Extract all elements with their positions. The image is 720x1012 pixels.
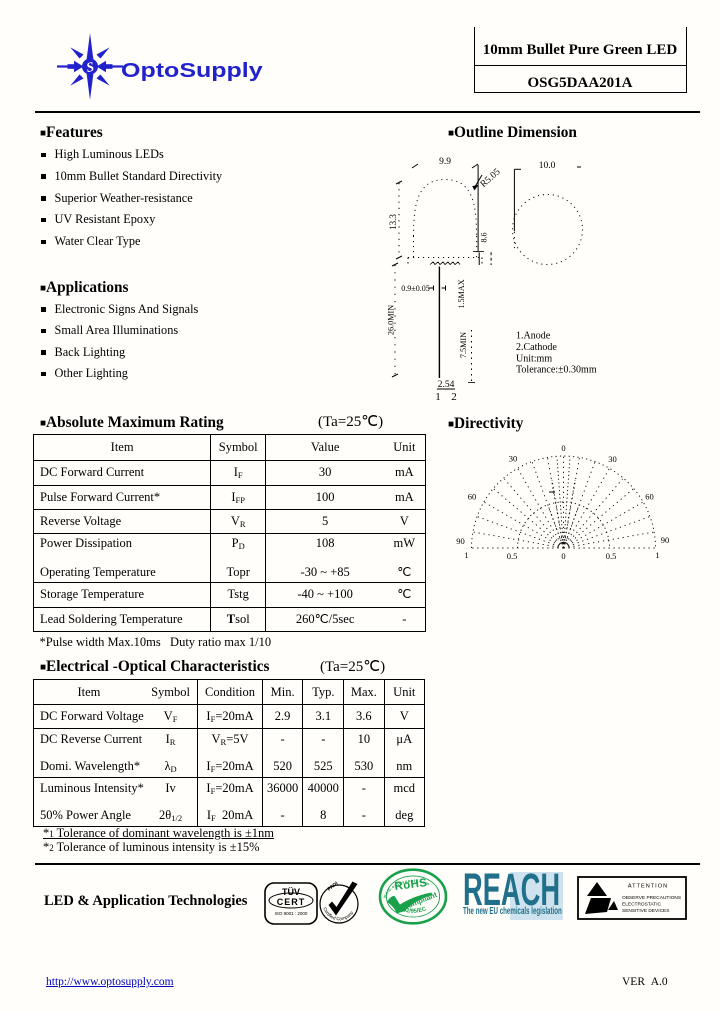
- svg-text:0: 0: [561, 551, 565, 561]
- svg-text:PADI: PADI: [327, 880, 340, 892]
- svg-text:ATTENTION: ATTENTION: [628, 884, 668, 890]
- svg-text:9.9: 9.9: [439, 157, 451, 167]
- svg-text:OBSERVE PRECAUTIONS: OBSERVE PRECAUTIONS: [622, 895, 681, 901]
- svg-text:ELECTROSTATIC: ELECTROSTATIC: [622, 902, 662, 908]
- svg-text:CERT: CERT: [277, 897, 306, 907]
- svg-text:8.6: 8.6: [480, 233, 489, 243]
- svg-text:10.0: 10.0: [539, 161, 556, 171]
- svg-text:30: 30: [509, 454, 518, 464]
- svg-text:26.0MIN: 26.0MIN: [387, 305, 396, 335]
- svg-text:R5.05: R5.05: [479, 167, 503, 190]
- svg-text:Unit:mm: Unit:mm: [516, 354, 552, 365]
- svg-text:2.54: 2.54: [438, 380, 455, 390]
- svg-text:1.5MAX: 1.5MAX: [457, 279, 466, 308]
- svg-text:RoHS: RoHS: [394, 877, 428, 893]
- svg-text:Tolerance:±0.30mm: Tolerance:±0.30mm: [516, 364, 597, 375]
- svg-text:TÜV: TÜV: [282, 887, 300, 897]
- svg-text:1: 1: [655, 550, 659, 560]
- svg-text:90: 90: [661, 535, 670, 545]
- svg-text:0.5: 0.5: [507, 551, 518, 561]
- svg-text:30: 30: [608, 454, 617, 464]
- svg-text:2: 2: [451, 391, 457, 403]
- svg-text:0.5: 0.5: [606, 551, 617, 561]
- svg-text:1: 1: [435, 391, 441, 403]
- svg-text:7.5MIN: 7.5MIN: [459, 332, 468, 358]
- svg-text:0: 0: [561, 443, 565, 453]
- svg-text:1.Anode: 1.Anode: [516, 330, 551, 341]
- svg-text:60: 60: [468, 492, 477, 502]
- svg-text:60: 60: [645, 492, 654, 502]
- svg-text:0.9±0.05: 0.9±0.05: [401, 284, 429, 293]
- svg-text:2.Cathode: 2.Cathode: [516, 342, 557, 353]
- svg-text:1: 1: [464, 550, 468, 560]
- svg-text:90: 90: [456, 536, 465, 546]
- svg-text:SENSITIVE DEVICES: SENSITIVE DEVICES: [622, 908, 669, 914]
- svg-text:ISO 9001 : 2000: ISO 9001 : 2000: [275, 911, 308, 916]
- svg-text:13.3: 13.3: [388, 214, 398, 230]
